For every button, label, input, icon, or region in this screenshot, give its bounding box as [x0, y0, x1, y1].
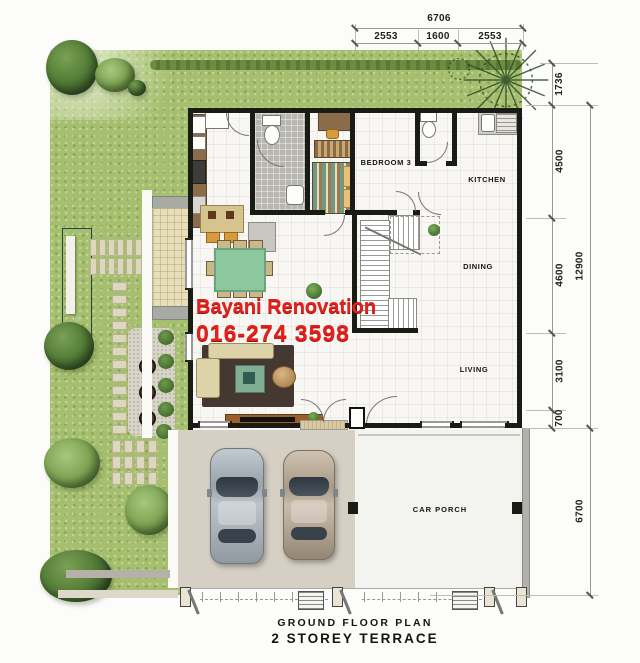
stepping-stone — [112, 425, 127, 434]
tree — [44, 322, 94, 370]
staircase-landing — [388, 298, 417, 332]
basin-icon — [286, 185, 304, 205]
gate-post — [516, 587, 527, 607]
shrub — [158, 330, 174, 345]
dimension-line — [552, 63, 553, 428]
room-label-kitchen: KITCHEN — [447, 175, 527, 184]
wall-interior — [250, 210, 325, 215]
coffee-table-tray — [243, 372, 255, 384]
watermark-phone: 016-274 3598 — [196, 320, 350, 347]
tree — [44, 438, 100, 488]
car-mirror — [262, 489, 267, 497]
car-roof — [218, 501, 256, 525]
extension-line — [540, 63, 598, 64]
stepping-stone-grid — [90, 239, 142, 275]
placemat — [226, 211, 234, 219]
stepping-stone — [112, 399, 127, 408]
porch-beam-line — [358, 434, 520, 436]
stepping-stone-grid-lower — [112, 440, 157, 485]
side-fence — [522, 428, 530, 598]
stepping-stone — [112, 321, 127, 330]
stepping-stone — [108, 239, 115, 256]
side-walkway — [142, 190, 152, 438]
stepping-stone — [148, 440, 157, 453]
stove-icon — [192, 136, 206, 150]
wall-interior — [452, 108, 457, 166]
car-rear-window — [291, 527, 327, 540]
sofa — [196, 358, 220, 398]
side-window — [185, 332, 193, 362]
dim-top-seg3: 2553 — [462, 31, 518, 43]
dim-right-4500: 4500 — [555, 105, 567, 218]
drain-grate-icon — [452, 591, 478, 610]
tree — [46, 40, 98, 95]
wall-interior — [250, 108, 255, 213]
stepping-stone — [112, 456, 121, 469]
bush — [125, 485, 173, 535]
dim-right-1736: 1736 — [554, 63, 566, 105]
desk — [318, 111, 354, 131]
car-rear-window — [218, 529, 256, 543]
room-label-dining: DINING — [438, 262, 518, 271]
dim-right-12900: 12900 — [575, 105, 587, 428]
stepping-stone — [99, 258, 106, 275]
plot-boundary-line — [178, 588, 528, 589]
watermark-name: Bayani Renovation — [196, 296, 376, 319]
stepping-stone — [112, 386, 127, 395]
extension-line — [430, 595, 598, 596]
stepping-stone — [124, 456, 133, 469]
dimension-line — [355, 28, 523, 29]
pool-deck-board — [66, 236, 75, 314]
wall-front — [505, 423, 522, 428]
stepping-stone — [112, 360, 127, 369]
stepping-stone — [117, 239, 124, 256]
stepping-stone — [90, 239, 97, 256]
stepping-stone — [117, 258, 124, 275]
stepping-stone — [112, 295, 127, 304]
caption-plan-name: GROUND FLOOR PLAN — [225, 617, 485, 629]
room-label-car-porch: CAR PORCH — [400, 505, 480, 514]
stepping-stone — [126, 239, 133, 256]
desk-chair — [326, 129, 339, 139]
oven-icon — [192, 160, 206, 184]
stepping-stone — [126, 258, 133, 275]
dimension-line — [355, 43, 523, 44]
wall-front — [228, 423, 300, 428]
round-chair — [272, 366, 296, 388]
tree — [128, 80, 146, 96]
stepping-stone — [136, 456, 145, 469]
stepping-stone — [124, 472, 133, 485]
stepping-stone — [112, 373, 127, 382]
porch-column — [512, 502, 522, 514]
wall-front — [188, 423, 198, 428]
side-window — [185, 238, 193, 290]
wall-interior — [446, 161, 457, 166]
stepping-stone — [112, 347, 127, 356]
stepping-stone-path — [112, 282, 127, 434]
potted-plant-icon — [428, 224, 440, 236]
front-window — [420, 421, 454, 428]
wall-front — [450, 423, 460, 428]
room-label-bedroom3: BEDROOM 3 — [346, 158, 426, 167]
shrub — [158, 402, 174, 417]
stepping-stone — [112, 282, 127, 291]
front-window — [198, 421, 232, 428]
stepping-stone — [112, 472, 121, 485]
stepping-stone — [99, 239, 106, 256]
stepping-stone — [124, 440, 133, 453]
curb-strip-lower — [58, 590, 178, 598]
kitchen-sink-icon — [481, 114, 495, 132]
car-mirror — [207, 489, 212, 497]
car-roof — [291, 500, 327, 523]
car-mirror — [280, 489, 285, 497]
stepping-stone — [112, 412, 127, 421]
porch-column — [348, 502, 358, 514]
car-tan — [283, 450, 335, 560]
stepping-stone — [112, 334, 127, 343]
stepping-stone — [112, 308, 127, 317]
dining-table — [214, 248, 266, 292]
dish-drainer-icon — [496, 113, 517, 133]
stepping-stone — [136, 472, 145, 485]
room-label-living: LIVING — [434, 365, 514, 374]
wall-interior — [305, 108, 310, 213]
toilet-icon — [422, 121, 436, 138]
line-flower-icon — [446, 56, 472, 82]
dim-right-6700: 6700 — [575, 428, 587, 595]
floor-plan-canvas: BEDROOM 3 KITCHEN DINING LIVING CAR PORC… — [0, 0, 640, 663]
front-window — [460, 421, 509, 428]
shrub — [158, 378, 174, 393]
stepping-stone — [112, 440, 121, 453]
car-windshield — [216, 477, 258, 497]
stepping-stone — [148, 472, 157, 485]
dim-top-seg1: 2553 — [358, 31, 414, 43]
dim-right-4600: 4600 — [555, 218, 567, 333]
car-silver — [210, 448, 264, 564]
dim-right-3100: 3100 — [555, 333, 567, 410]
placemat — [208, 211, 216, 219]
car-mirror — [333, 489, 338, 497]
wall-front — [363, 423, 420, 428]
stepping-stone — [108, 258, 115, 275]
shrub — [158, 354, 174, 369]
tv-icon — [240, 417, 295, 422]
car-windshield — [289, 477, 329, 496]
stepping-stone — [90, 258, 97, 275]
dim-top-seg2: 1600 — [410, 31, 466, 43]
shelf-unit — [314, 140, 354, 158]
breakfast-table — [200, 205, 244, 233]
dim-right-700: 700 — [554, 403, 566, 433]
stepping-stone — [135, 258, 142, 275]
drain-grate-icon — [298, 591, 324, 610]
wall-stair-bottom — [352, 328, 418, 333]
dim-top-overall: 6706 — [405, 13, 473, 25]
stepping-stone — [148, 456, 157, 469]
dimension-line — [590, 105, 591, 595]
patio-planter-bottom — [152, 306, 190, 320]
caption-house-type: 2 STOREY TERRACE — [225, 631, 485, 646]
stepping-stone — [135, 239, 142, 256]
curb-strip — [66, 570, 170, 578]
sink-icon — [192, 116, 206, 134]
stepping-stone — [136, 440, 145, 453]
